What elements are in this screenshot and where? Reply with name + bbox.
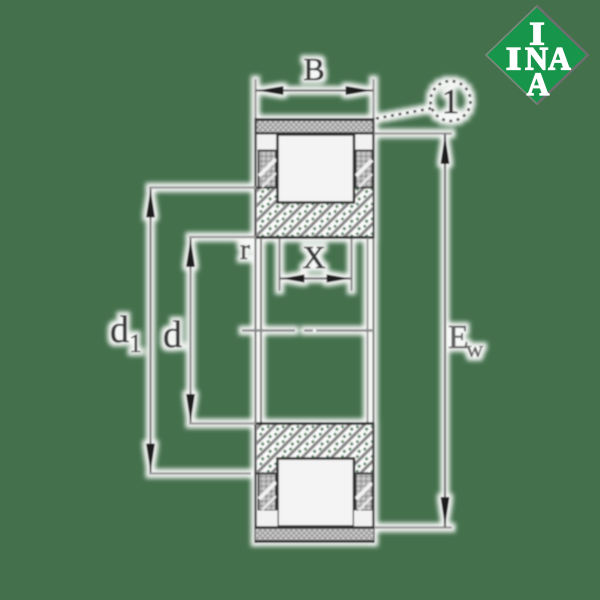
svg-text:w: w <box>466 337 484 363</box>
svg-text:1: 1 <box>442 82 460 121</box>
svg-text:d: d <box>163 314 182 356</box>
svg-text:d: d <box>110 309 129 351</box>
svg-text:1: 1 <box>129 329 142 358</box>
svg-text:I: I <box>506 42 522 78</box>
svg-text:B: B <box>303 51 324 87</box>
svg-text:r: r <box>240 233 250 266</box>
svg-text:X: X <box>302 239 325 275</box>
svg-text:A: A <box>527 67 550 103</box>
svg-text:A: A <box>548 42 571 78</box>
